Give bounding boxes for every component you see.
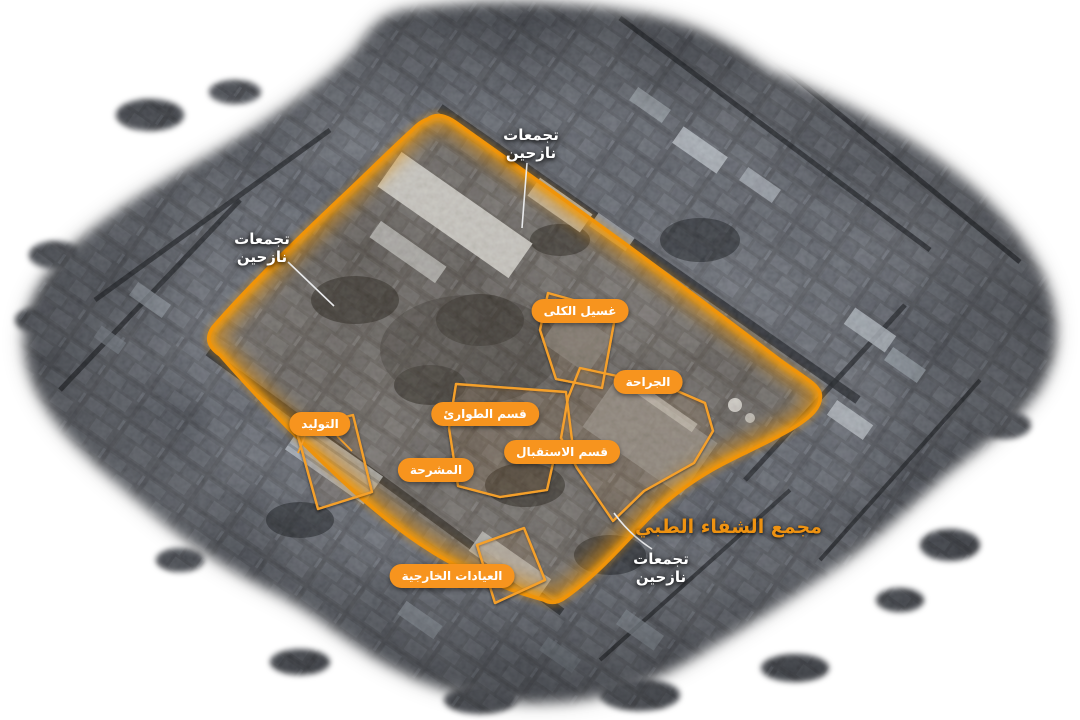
satellite-map [0, 0, 1080, 720]
infographic-canvas: تجمعات نازحين تجمعات نازحين تجمعات نازحي… [0, 0, 1080, 720]
